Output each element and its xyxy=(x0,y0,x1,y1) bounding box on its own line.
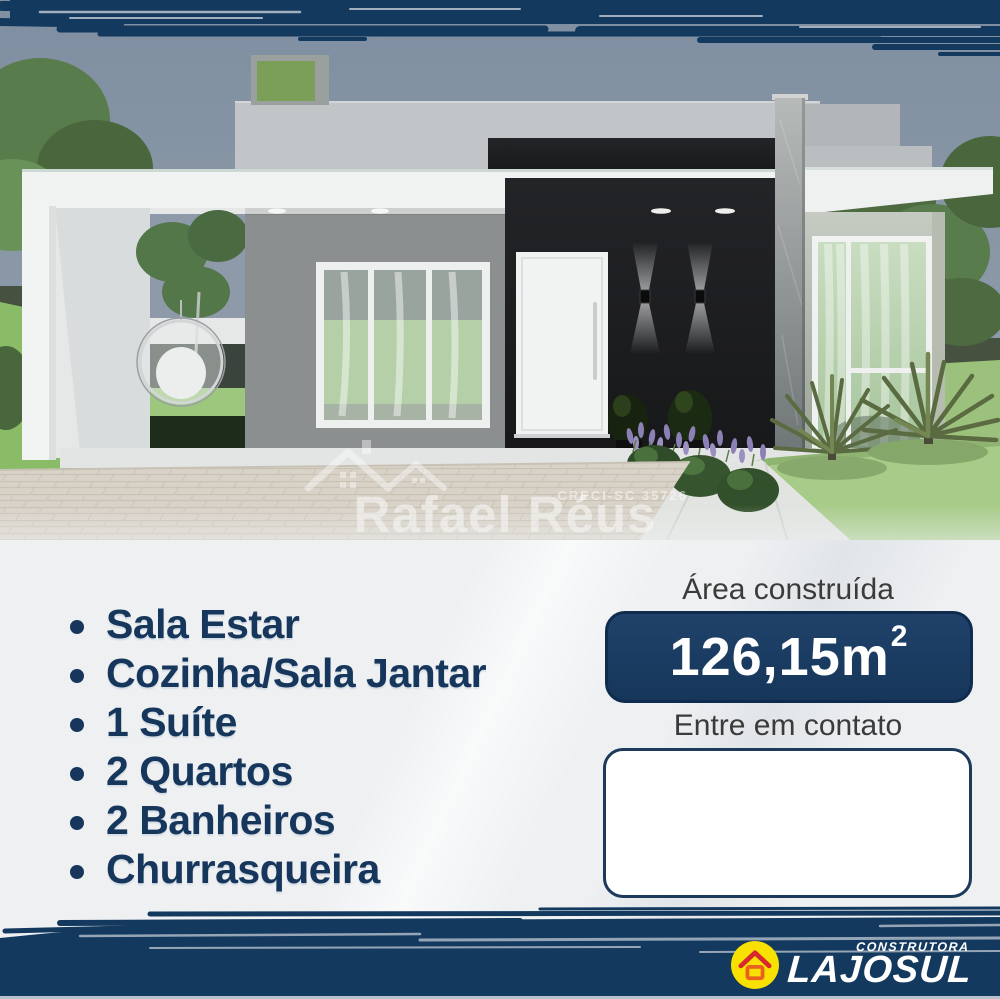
soffit-light xyxy=(268,208,286,213)
bullet-icon xyxy=(70,718,84,732)
area-superscript: 2 xyxy=(891,620,909,654)
area-value: 126,15m xyxy=(670,626,890,688)
chimney xyxy=(251,55,329,105)
list-item: Cozinha/Sala Jantar xyxy=(70,649,600,698)
bullet-icon xyxy=(70,767,84,781)
contact-info-box xyxy=(603,748,972,898)
soffit-light xyxy=(651,208,671,214)
list-item: Churrasqueira xyxy=(70,845,600,894)
feature-label: Sala Estar xyxy=(106,601,299,648)
list-item: 2 Quartos xyxy=(70,747,600,796)
stone-column xyxy=(772,94,808,464)
soffit-light xyxy=(371,208,389,213)
entrance-door xyxy=(514,252,610,438)
right-parapet-upper xyxy=(800,104,900,148)
real-estate-flyer: CRECI-SC 35726 Rafael Réus AVALIADOR E C… xyxy=(0,0,1000,999)
brand-name: LAJOSUL xyxy=(786,951,973,989)
logo-circle xyxy=(731,941,779,989)
area-label: Área construída xyxy=(603,573,973,607)
house-render-photo: CRECI-SC 35726 Rafael Réus AVALIADOR E C… xyxy=(0,0,1000,585)
sliding-glass-door xyxy=(316,262,490,428)
feature-label: 1 Suíte xyxy=(106,699,237,746)
soffit-light xyxy=(715,208,735,214)
bullet-icon xyxy=(70,816,84,830)
feature-list: Sala Estar Cozinha/Sala Jantar 1 Suíte 2… xyxy=(70,600,600,894)
list-item: 1 Suíte xyxy=(70,698,600,747)
pergola-column xyxy=(22,206,56,460)
bullet-icon xyxy=(70,620,84,634)
logo-text: CONSTRUTORA LAJOSUL xyxy=(786,940,974,989)
bullet-icon xyxy=(70,669,84,683)
area-value-badge: 126,15m2 xyxy=(605,611,973,703)
feature-label: Churrasqueira xyxy=(106,846,380,893)
list-item: 2 Banheiros xyxy=(70,796,600,845)
feature-label: Cozinha/Sala Jantar xyxy=(106,650,486,697)
house-icon xyxy=(736,948,774,982)
bullet-icon xyxy=(70,865,84,879)
feature-label: 2 Banheiros xyxy=(106,797,335,844)
feature-label: 2 Quartos xyxy=(106,748,293,795)
builder-logo: CONSTRUTORA LAJOSUL xyxy=(731,940,972,989)
contact-label: Entre em contato xyxy=(603,709,973,743)
roof-logo-icon xyxy=(300,438,450,492)
list-item: Sala Estar xyxy=(70,600,600,649)
